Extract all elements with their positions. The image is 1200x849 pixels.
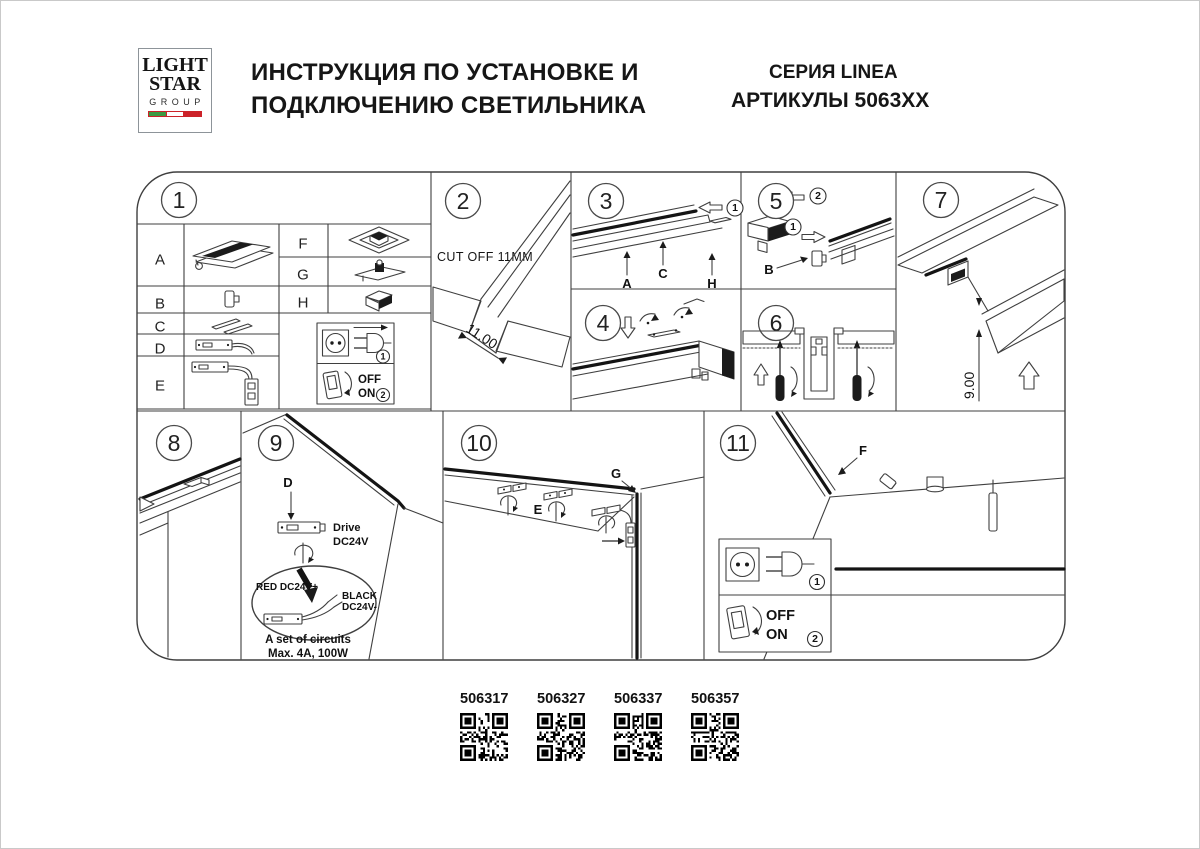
driver-pair-1	[498, 483, 526, 515]
wire-red-label: RED DC24V+	[256, 582, 318, 593]
corner-connector-drawing	[748, 216, 790, 253]
part-h-drawing	[366, 291, 392, 311]
track-slab-drawing	[573, 341, 734, 399]
legend-on-label: ON	[358, 388, 375, 400]
panel-9-number: 9	[270, 430, 283, 456]
soffit-drawing	[445, 469, 704, 658]
power-legend-large: 1 OFF ON 2	[719, 539, 831, 652]
downlight-fixture	[927, 477, 944, 492]
callout-a: A	[622, 276, 632, 291]
cut-off-text: CUT OFF 11MM	[437, 250, 533, 264]
panel-11-number: 11	[726, 430, 750, 456]
part-label-a: A	[155, 252, 165, 269]
part-label-b: B	[155, 296, 165, 313]
ceiling-corner-drawing	[140, 459, 240, 657]
part-label-f: F	[298, 236, 307, 253]
push-up-arrow	[754, 364, 768, 385]
part-a-drawing	[193, 241, 273, 269]
qr-item-506357: 506357	[691, 691, 739, 761]
legend-step-1: 1	[814, 576, 820, 588]
italian-flag-icon	[148, 111, 202, 117]
corner-driver	[592, 505, 635, 547]
pin-and-arrows	[621, 299, 704, 338]
qr-code	[691, 713, 739, 761]
callout-f: F	[859, 443, 867, 458]
part-e-drawing	[192, 362, 258, 405]
qr-item-506337: 506337	[614, 691, 662, 761]
socket-icon	[726, 548, 759, 581]
rotate-symbol	[295, 543, 314, 563]
series-label: СЕРИЯ LINEA	[769, 62, 898, 84]
part-label-d: D	[155, 341, 166, 358]
panel-5-number: 5	[770, 188, 783, 214]
article-number: 506317	[460, 691, 508, 707]
panel-6-number: 6	[770, 310, 783, 336]
part-b-drawing	[225, 291, 239, 307]
driver-pair-2	[544, 489, 572, 521]
callout-e: E	[534, 502, 543, 517]
panel-10-drivers: 10	[445, 426, 704, 659]
part-g-drawing	[355, 260, 405, 281]
qr-item-506317: 506317	[460, 691, 508, 761]
panel-1-number: 1	[173, 187, 186, 213]
dimension-9-text: 9.00	[961, 372, 977, 399]
cap-drawing	[812, 251, 826, 266]
callout-c: C	[658, 266, 668, 281]
track-profile	[795, 328, 843, 399]
legend-step-2: 2	[812, 633, 818, 645]
legend-off-label: OFF	[766, 608, 795, 624]
panel-1-parts-table: 1 A B C D E F G H	[138, 183, 432, 410]
panel-7-number: 7	[935, 187, 948, 213]
title-line-1: ИНСТРУКЦИЯ ПО УСТАНОВКЕ И	[251, 56, 646, 89]
callout-b: B	[764, 262, 773, 277]
panel-2-number: 2	[457, 188, 470, 214]
screwdriver-right	[853, 340, 875, 401]
part-label-c: C	[155, 319, 166, 336]
pendant-fixture	[989, 480, 997, 531]
part-c-drawing	[212, 319, 252, 334]
panel-10-number: 10	[466, 430, 492, 456]
part-label-e: E	[155, 378, 165, 395]
callout-d: D	[283, 475, 292, 490]
wire-black-label-1: BLACK	[342, 591, 378, 602]
part-label-g: G	[297, 267, 309, 284]
panel-3-step-2: 2	[815, 190, 821, 202]
legend-step-2: 2	[380, 390, 385, 400]
push-up-arrow	[1019, 362, 1039, 389]
callout-g: G	[611, 466, 621, 481]
article-number: 506337	[614, 691, 662, 707]
panel-3-number: 3	[600, 188, 613, 214]
screwdriver-left	[776, 340, 798, 401]
qr-code	[460, 713, 508, 761]
ceiling-perspective	[898, 189, 1064, 353]
spot-fixture	[879, 473, 896, 489]
ceiling-slab-right	[496, 321, 570, 367]
article-number: 506357	[691, 691, 739, 707]
wire-black-label-2: DC24V-	[342, 602, 377, 613]
qr-code-row: 506317 506327 506337 506357	[460, 691, 739, 761]
profile-end-drawing	[829, 219, 894, 264]
instruction-sheet: LIGHT STAR GROUP ИНСТРУКЦИЯ ПО УСТАНОВКЕ…	[0, 0, 1200, 849]
power-legend-small: 1 OFF ON 2	[317, 323, 394, 404]
insert-arrow-1	[699, 202, 722, 213]
insert-arrow	[802, 232, 825, 243]
panel-5-step-1: 1	[790, 221, 796, 233]
driver-label-1: Drive	[333, 522, 361, 534]
qr-code	[614, 713, 662, 761]
legend-step-1: 1	[380, 352, 385, 362]
panel-4-number: 4	[597, 310, 610, 336]
driver-box	[278, 522, 325, 533]
circuits-note-2: Max. 4A, 100W	[268, 648, 348, 660]
circuits-note-1: A set of circuits	[265, 634, 351, 646]
dimension-9mm: 9.00	[961, 298, 982, 401]
part-d-drawing	[196, 340, 254, 354]
driver-label-2: DC24V	[333, 536, 369, 548]
panel-2-cut-off: 2 CUT OFF 11MM 11.00	[433, 181, 570, 367]
part-f-drawing	[349, 227, 409, 253]
callout-h: H	[707, 276, 716, 291]
ceiling-band-right	[838, 331, 894, 344]
legend-off-label: OFF	[358, 374, 381, 386]
qr-item-506327: 506327	[537, 691, 585, 761]
callout-d-arrow	[288, 513, 295, 520]
driver-box-detail	[264, 595, 342, 624]
panel-8-number: 8	[168, 430, 181, 456]
panel-7-recessed-result: 7 9.00	[898, 183, 1064, 402]
panel-9-driver-wiring: 9 D Drive DC24V	[243, 414, 443, 660]
article-number: 506327	[537, 691, 585, 707]
panel-6-cross-section: 6	[743, 306, 894, 402]
socket-icon	[323, 330, 349, 356]
qr-code	[537, 713, 585, 761]
articles-label: АРТИКУЛЫ 5063XX	[731, 89, 929, 113]
page-title: ИНСТРУКЦИЯ ПО УСТАНОВКЕ И ПОДКЛЮЧЕНИЮ СВ…	[251, 56, 646, 122]
legend-on-label: ON	[766, 627, 788, 643]
part-label-h: H	[298, 295, 309, 312]
logo-text-group: GROUP	[139, 97, 211, 107]
logo-text-star: STAR	[139, 75, 211, 94]
panel-3-step-1: 1	[732, 202, 738, 214]
title-line-2: ПОДКЛЮЧЕНИЮ СВЕТИЛЬНИКА	[251, 89, 646, 122]
panel-11-finished: 11 F	[719, 412, 1064, 659]
panel-3-callouts: A C H	[622, 241, 716, 291]
panel-8-mounted-track: 8	[140, 426, 240, 658]
installation-diagram: 1 A B C D E F G H	[136, 171, 1066, 661]
panel-4-pin-connector: 4	[573, 299, 734, 399]
lightstar-logo: LIGHT STAR GROUP	[138, 48, 212, 133]
